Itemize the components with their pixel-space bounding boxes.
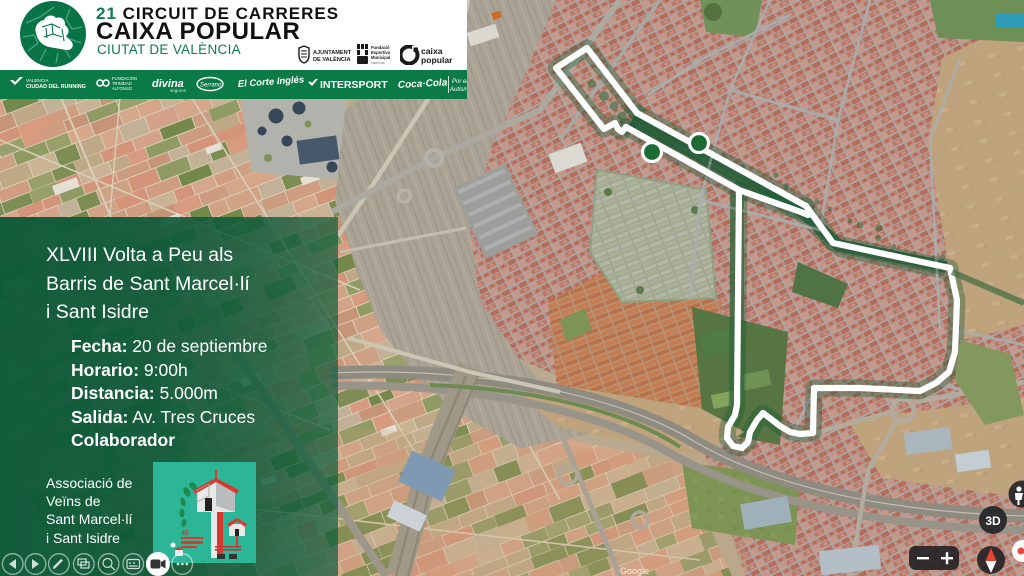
svg-text:Municipal: Municipal [371, 55, 390, 60]
svg-text:Serrano: Serrano [200, 83, 222, 89]
svg-text:seguros: seguros [170, 88, 187, 93]
svg-text:AJUNTAMENT: AJUNTAMENT [313, 50, 352, 56]
svg-text:DE VALÈNCIA: DE VALÈNCIA [313, 55, 351, 63]
svg-text:Google: Google [620, 566, 649, 576]
svg-text:popular: popular [421, 55, 453, 65]
svg-text:El Corte Inglés: El Corte Inglés [237, 74, 304, 90]
svg-text:VALENCIA: VALENCIA [26, 78, 49, 83]
svg-text:València: València [371, 61, 385, 65]
svg-text:CIUDAD DEL RUNNING: CIUDAD DEL RUNNING [26, 84, 86, 90]
svg-text:40: 40 [181, 530, 189, 537]
svg-text:Autismo: Autismo [449, 87, 467, 93]
svg-text:ALFONSO: ALFONSO [112, 86, 133, 91]
svg-text:3D: 3D [985, 514, 1001, 528]
svg-text:Coca·Cola: Coca·Cola [398, 77, 448, 91]
svg-text:INTERSPORT: INTERSPORT [320, 79, 388, 91]
svg-text:Por el: Por el [452, 79, 467, 85]
